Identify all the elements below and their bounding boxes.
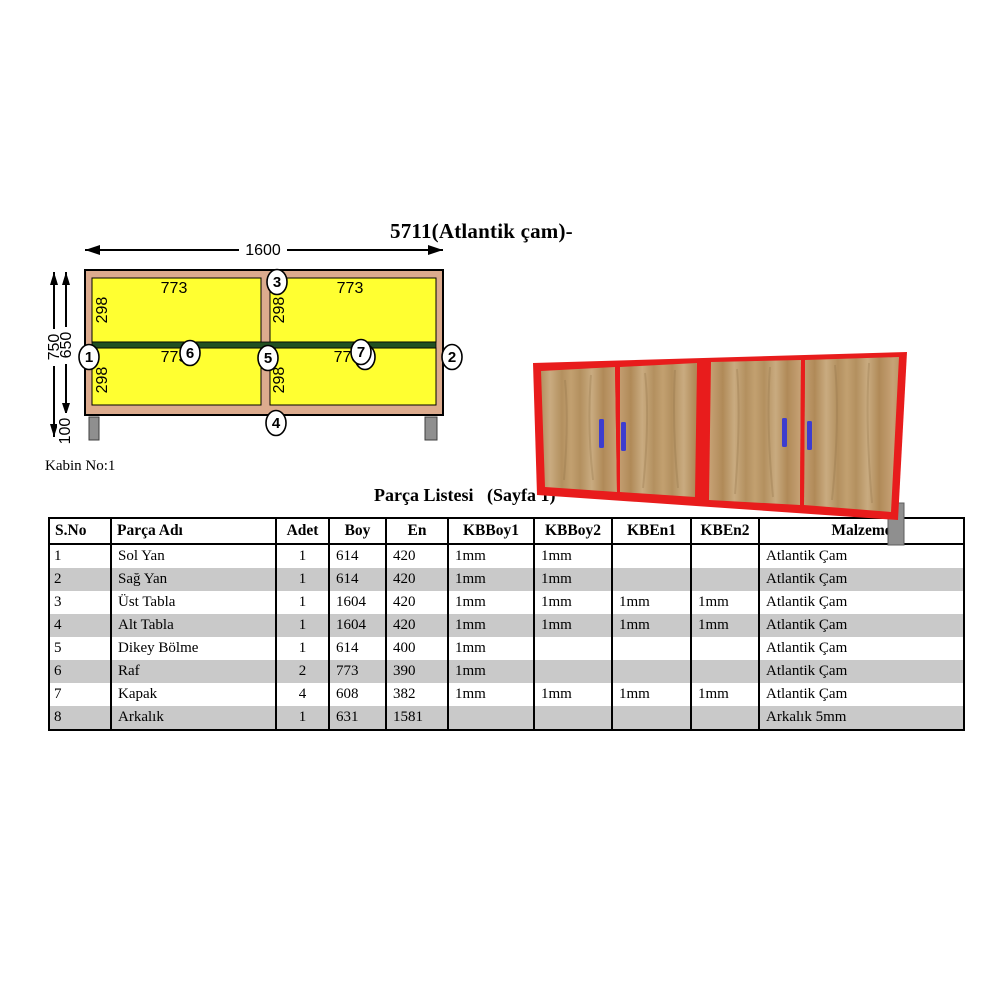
table-cell: 1 xyxy=(276,637,329,660)
table-cell: Sağ Yan xyxy=(111,568,276,591)
marker-3: 3 xyxy=(267,270,287,295)
table-cell: 420 xyxy=(386,614,448,637)
table-cell: Atlantik Çam xyxy=(759,591,964,614)
table-cell: Arkalık 5mm xyxy=(759,706,964,730)
dim-body-height-label: 650 xyxy=(58,332,75,359)
table-row: 1Sol Yan16144201mm1mmAtlantik Çam xyxy=(49,544,964,568)
table-cell: 420 xyxy=(386,568,448,591)
table-cell: 1mm xyxy=(691,614,759,637)
leg-left xyxy=(89,417,99,440)
table-row: 7Kapak46083821mm1mm1mm1mmAtlantik Çam xyxy=(49,683,964,706)
table-cell: 1mm xyxy=(534,683,612,706)
table-cell: 5 xyxy=(49,637,111,660)
height-label-bottom-left: 298 xyxy=(94,367,111,394)
wood-grain xyxy=(564,363,872,503)
table-cell: 1mm xyxy=(612,591,691,614)
table-cell: 608 xyxy=(329,683,386,706)
table-row: 8Arkalık16311581Arkalık 5mm xyxy=(49,706,964,730)
table-cell xyxy=(691,637,759,660)
width-label-top-right: 773 xyxy=(337,280,364,297)
table-cell: 1604 xyxy=(329,591,386,614)
table-cell: Alt Tabla xyxy=(111,614,276,637)
table-cell: 1mm xyxy=(612,683,691,706)
table-cell: 1mm xyxy=(448,591,534,614)
table-cell: 1mm xyxy=(534,614,612,637)
table-row: 4Alt Tabla116044201mm1mm1mm1mmAtlantik Ç… xyxy=(49,614,964,637)
height-label-bottom-right: 298 xyxy=(271,367,288,394)
table-cell xyxy=(691,544,759,568)
table-cell: 4 xyxy=(276,683,329,706)
parts-list-heading: Parça Listesi (Sayfa 1) xyxy=(374,485,555,506)
table-cell: 1mm xyxy=(612,614,691,637)
svg-text:3: 3 xyxy=(273,274,281,291)
table-cell: 1604 xyxy=(329,614,386,637)
table-cell: 631 xyxy=(329,706,386,730)
dim-width-label: 1600 xyxy=(245,242,281,259)
door-seam-left xyxy=(615,367,620,492)
table-cell: 1mm xyxy=(534,591,612,614)
table-cell: 1mm xyxy=(448,660,534,683)
column-header-malzeme: Malzeme xyxy=(759,518,964,544)
table-cell: Kapak xyxy=(111,683,276,706)
table-cell: 7 xyxy=(49,683,111,706)
column-header-kbboy2: KBBoy2 xyxy=(534,518,612,544)
leg-right xyxy=(425,417,437,440)
table-cell: 390 xyxy=(386,660,448,683)
svg-text:1: 1 xyxy=(85,349,93,366)
table-cell: 420 xyxy=(386,591,448,614)
table-cell: Sol Yan xyxy=(111,544,276,568)
table-cell: 6 xyxy=(49,660,111,683)
table-cell: Atlantik Çam xyxy=(759,683,964,706)
table-cell: 1mm xyxy=(448,614,534,637)
svg-text:4: 4 xyxy=(272,415,281,432)
svg-text:2: 2 xyxy=(448,349,456,366)
table-cell: 8 xyxy=(49,706,111,730)
table-cell: 1 xyxy=(276,568,329,591)
table-cell: 1mm xyxy=(691,591,759,614)
table-cell: 2 xyxy=(276,660,329,683)
production-sheet: 5711(Atlantik çam)- 1600 750 650 100 xyxy=(0,0,1000,1000)
parts-table: S.NoParça AdıAdetBoyEnKBBoy1KBBoy2KBEn1K… xyxy=(48,517,965,731)
table-cell: 1581 xyxy=(386,706,448,730)
marker-1: 1 xyxy=(79,345,99,370)
table-cell: 1mm xyxy=(534,544,612,568)
render-door-1 xyxy=(541,367,617,492)
table-cell xyxy=(534,706,612,730)
svg-text:6: 6 xyxy=(186,345,194,362)
table-cell: Dikey Bölme xyxy=(111,637,276,660)
table-cell: 400 xyxy=(386,637,448,660)
height-label-top-left: 298 xyxy=(94,297,111,324)
table-cell: Üst Tabla xyxy=(111,591,276,614)
table-cell xyxy=(691,660,759,683)
column-header-s-no: S.No xyxy=(49,518,111,544)
table-cell xyxy=(612,637,691,660)
dimension-heights: 750 650 100 xyxy=(45,272,75,449)
table-cell: 1mm xyxy=(534,568,612,591)
table-cell xyxy=(612,660,691,683)
svg-text:5: 5 xyxy=(264,350,272,367)
header-row: S.NoParça AdıAdetBoyEnKBBoy1KBBoy2KBEn1K… xyxy=(49,518,964,544)
marker-2: 2 xyxy=(442,345,462,370)
table-cell xyxy=(448,706,534,730)
table-cell: 1 xyxy=(276,614,329,637)
cabinet-front-diagram: 1600 750 650 100 xyxy=(40,230,470,455)
table-cell: 1mm xyxy=(691,683,759,706)
table-row: 6Raf27733901mmAtlantik Çam xyxy=(49,660,964,683)
table-cell: 1mm xyxy=(448,568,534,591)
table-cell: 614 xyxy=(329,568,386,591)
table-cell: Atlantik Çam xyxy=(759,660,964,683)
table-cell xyxy=(691,568,759,591)
door-seam-right xyxy=(800,360,805,505)
table-cell: Raf xyxy=(111,660,276,683)
table-cell: 382 xyxy=(386,683,448,706)
column-header-adet: Adet xyxy=(276,518,329,544)
marker-4: 4 xyxy=(266,411,286,436)
table-cell xyxy=(612,568,691,591)
table-cell: 1 xyxy=(276,706,329,730)
table-cell: Atlantik Çam xyxy=(759,614,964,637)
column-header-boy: Boy xyxy=(329,518,386,544)
table-cell xyxy=(534,637,612,660)
table-cell: 773 xyxy=(329,660,386,683)
table-cell: 614 xyxy=(329,544,386,568)
dimension-width: 1600 xyxy=(85,239,443,259)
column-header-en: En xyxy=(386,518,448,544)
column-header-kbboy1: KBBoy1 xyxy=(448,518,534,544)
table-cell: Atlantik Çam xyxy=(759,568,964,591)
table-cell xyxy=(612,706,691,730)
table-cell xyxy=(691,706,759,730)
table-cell: 1mm xyxy=(448,544,534,568)
marker-5: 5 xyxy=(258,346,278,371)
marker-6: 6 xyxy=(180,341,200,366)
render-red-frame xyxy=(533,352,907,520)
render-door-4 xyxy=(804,357,899,512)
table-cell: 2 xyxy=(49,568,111,591)
door-handles xyxy=(599,418,812,451)
table-cell: 1mm xyxy=(448,637,534,660)
table-row: 2Sağ Yan16144201mm1mmAtlantik Çam xyxy=(49,568,964,591)
marker-7: 7 xyxy=(351,340,371,365)
table-cell: 1 xyxy=(276,544,329,568)
table-cell: 420 xyxy=(386,544,448,568)
column-header-kben2: KBEn2 xyxy=(691,518,759,544)
table-cell: 1 xyxy=(49,544,111,568)
table-cell: 3 xyxy=(49,591,111,614)
table-cell: Arkalık xyxy=(111,706,276,730)
cabin-number-label: Kabin No:1 xyxy=(45,458,115,475)
render-door-2 xyxy=(620,363,697,497)
svg-text:7: 7 xyxy=(357,344,365,361)
table-cell: Atlantik Çam xyxy=(759,544,964,568)
height-label-top-right: 298 xyxy=(271,297,288,324)
table-cell: 614 xyxy=(329,637,386,660)
dim-leg-height-label: 100 xyxy=(57,418,74,445)
column-header-par-a-ad-: Parça Adı xyxy=(111,518,276,544)
width-label-top-left: 773 xyxy=(161,280,188,297)
table-row: 5Dikey Bölme16144001mmAtlantik Çam xyxy=(49,637,964,660)
table-row: 3Üst Tabla116044201mm1mm1mm1mmAtlantik Ç… xyxy=(49,591,964,614)
table-cell xyxy=(534,660,612,683)
table-cell: 1 xyxy=(276,591,329,614)
render-door-3 xyxy=(709,360,801,505)
table-cell: Atlantik Çam xyxy=(759,637,964,660)
table-cell: 4 xyxy=(49,614,111,637)
table-cell: 1mm xyxy=(448,683,534,706)
table-cell xyxy=(612,544,691,568)
column-header-kben1: KBEn1 xyxy=(612,518,691,544)
